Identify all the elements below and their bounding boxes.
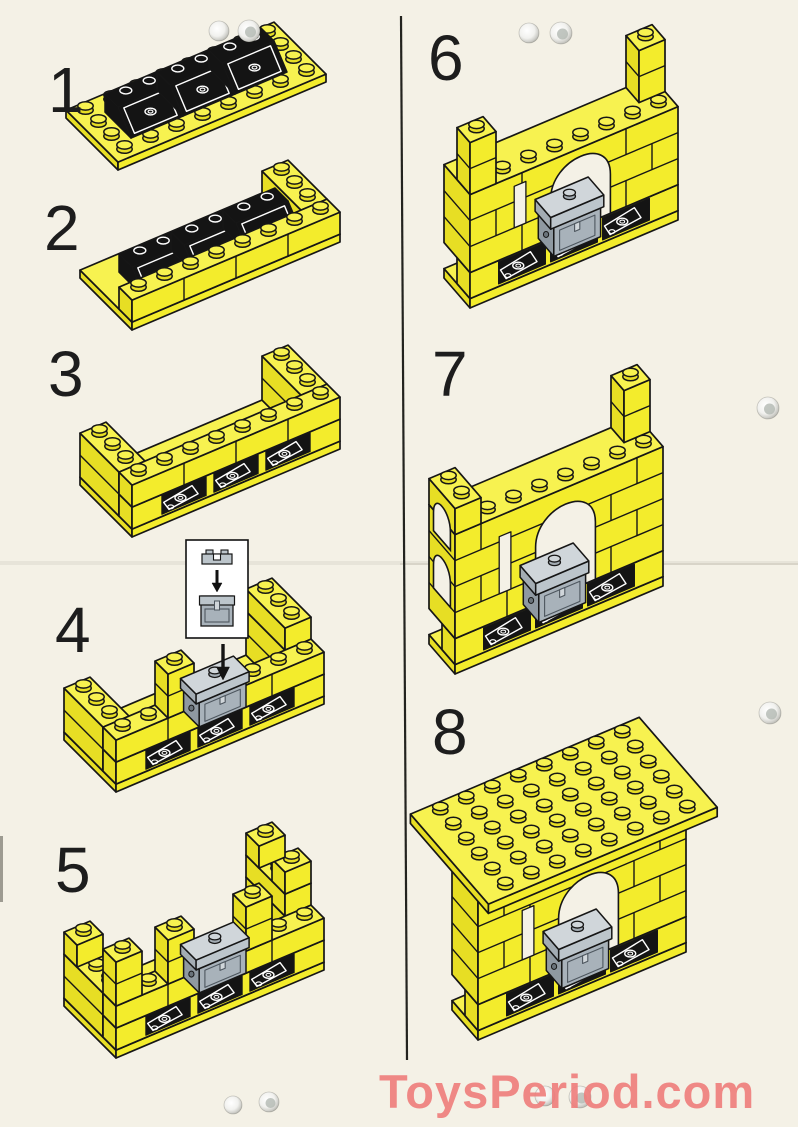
step-6-figure [444,25,678,308]
step-1-number: 1 [48,58,84,122]
step-2-number: 2 [44,196,80,260]
punch-hole [759,702,781,724]
window-slit [522,906,534,960]
watermark: ToysPeriod.com [379,1068,755,1115]
punch-hole [259,1092,279,1112]
instruction-figures [0,0,798,1127]
left-front-column [103,938,142,1006]
punch-hole [519,23,539,43]
punch-hole [238,20,260,42]
punch-hole [757,397,779,419]
left-column [457,117,496,195]
step-5-number: 5 [55,838,91,902]
right-column [611,365,650,443]
step-3-figure [80,345,340,537]
step-6-number: 6 [428,26,464,90]
punch-hole [224,1096,242,1114]
step-1-figure [66,22,326,170]
step-7-number: 7 [432,342,468,406]
inset-box [186,540,248,638]
window-slit [499,532,511,594]
punch-hole [209,21,229,41]
scanned-instruction-page: 12345678 ToysPeriod.com [0,0,798,1127]
right-column [626,25,665,103]
column-divider [401,16,407,1060]
step-2-figure [80,160,340,330]
step-4-number: 4 [55,598,91,662]
window-slit [514,181,526,228]
step-3-number: 3 [48,342,84,406]
step-4-figure [64,540,324,792]
step-5-figure [64,822,324,1058]
step-7-figure [429,365,663,674]
step-8-number: 8 [432,700,468,764]
punch-hole [550,22,572,44]
